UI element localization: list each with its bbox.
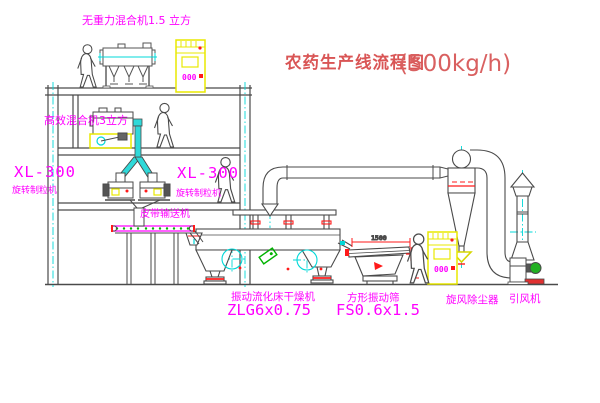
label-granulator-left-model: XL-300	[14, 163, 76, 181]
label-sieve-model: FS0.6x1.5	[336, 301, 420, 319]
sieve-dimension-text: 1500	[371, 234, 387, 242]
person-roof	[78, 45, 96, 87]
title-capacity: (500kg/h)	[399, 51, 511, 77]
granulator-left	[103, 173, 135, 200]
label-granulator-left-name: 旋转制粒机	[12, 184, 57, 196]
label-high-speed-mixer: 高效混合机3立方	[44, 113, 128, 127]
mixer-discharge-pipe	[135, 126, 141, 157]
control-cabinet-ground: 000	[428, 232, 457, 284]
drawing-canvas: 000 000	[0, 0, 600, 403]
conveyor-legs	[127, 233, 178, 284]
roof-slab	[45, 88, 252, 95]
indicator-light	[450, 238, 453, 241]
mid-floor-slab	[58, 148, 240, 155]
label-cyclone: 旋风除尘器	[446, 293, 499, 306]
label-gravity-mixer: 无重力混合机1.5 立方	[82, 13, 191, 27]
indicator-light	[198, 46, 201, 49]
vibrating-sieve: 1500	[338, 234, 419, 284]
label-induced-fan: 引风机	[509, 292, 541, 305]
induced-draft-fan	[508, 258, 544, 285]
conveyor-rollers-green	[116, 227, 189, 229]
granulator-right	[138, 173, 170, 200]
person-ground	[407, 234, 428, 283]
fan-motor	[530, 263, 541, 274]
cyclone-fan-duct	[470, 150, 512, 278]
fluid-bed-dryer	[186, 204, 340, 284]
cad-flow-diagram: 000 000	[0, 0, 600, 403]
gravity-free-mixer	[98, 43, 157, 88]
label-dryer-model: ZLG6x0.75	[227, 301, 311, 319]
stack-cap	[511, 173, 534, 187]
control-cabinet-top: 000	[176, 40, 205, 92]
label-granulator-mid-model: XL-300	[177, 164, 239, 182]
label-belt-conveyor: 皮带输送机	[140, 207, 190, 220]
dryer-exhaust-duct	[263, 165, 452, 204]
person-mid-floor	[155, 103, 174, 147]
cabinet-display: 000	[182, 73, 197, 82]
cabinet-display: 000	[434, 265, 449, 274]
label-granulator-mid-name: 旋转制粒机	[176, 187, 221, 199]
